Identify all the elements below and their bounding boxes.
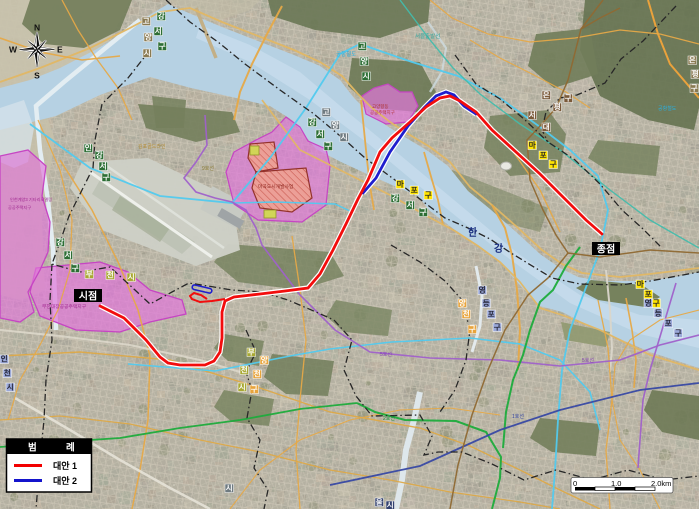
svg-text:포: 포 [645,290,652,299]
svg-text:고: 고 [359,42,366,51]
svg-text:구: 구 [72,264,79,273]
svg-text:시: 시 [7,383,14,392]
svg-text:마: 마 [529,140,536,150]
svg-text:김포골드라인: 김포골드라인 [138,143,166,150]
svg-text:강: 강 [57,237,64,247]
svg-text:구: 구 [675,329,682,338]
svg-text:천: 천 [107,270,114,280]
svg-text:5호선: 5호선 [582,357,594,364]
svg-text:강: 강 [309,117,316,127]
svg-text:9호선: 9호선 [202,165,214,172]
svg-text:서: 서 [407,200,414,210]
svg-text:S: S [34,71,40,81]
svg-text:천: 천 [254,369,261,379]
svg-text:고양향동: 고양향동 [372,103,389,109]
svg-text:강: 강 [96,150,103,160]
svg-text:서: 서 [100,161,107,171]
svg-text:구: 구 [425,191,432,200]
svg-text:공공주택지구: 공공주택지구 [8,204,31,211]
svg-text:2호선: 2호선 [383,415,395,422]
svg-text:례: 례 [66,442,75,454]
svg-text:N: N [34,23,40,33]
svg-text:1.0: 1.0 [611,479,621,488]
svg-text:구: 구 [159,42,166,51]
svg-text:인: 인 [1,354,8,364]
svg-text:강: 강 [392,193,399,203]
svg-text:양: 양 [459,298,466,308]
svg-text:구: 구 [251,385,258,394]
svg-text:양: 양 [332,120,339,130]
svg-text:마: 마 [397,179,404,189]
svg-text:인천계양3 기타리모델링: 인천계양3 기타리모델링 [10,196,52,203]
svg-text:공항철도: 공항철도 [336,50,356,58]
svg-text:마곡도시개발사업: 마곡도시개발사업 [258,183,293,190]
svg-text:천: 천 [241,365,248,375]
svg-text:구: 구 [550,160,557,169]
svg-text:천: 천 [4,368,11,378]
svg-text:구: 구 [653,299,660,308]
svg-text:포: 포 [411,186,418,195]
svg-text:인: 인 [85,143,92,153]
svg-text:서: 서 [529,110,536,120]
svg-text:등: 등 [655,309,662,318]
svg-text:시: 시 [387,501,394,509]
svg-text:고: 고 [143,17,150,26]
svg-text:구: 구 [325,142,332,151]
svg-text:평: 평 [554,102,561,112]
svg-text:공항철도: 공항철도 [658,105,677,112]
svg-text:부: 부 [248,348,255,357]
svg-text:시: 시 [363,72,370,81]
svg-text:울: 울 [376,497,383,507]
svg-text:구: 구 [420,208,427,217]
svg-text:구: 구 [469,325,476,334]
svg-text:부: 부 [86,270,93,279]
svg-text:평: 평 [692,69,699,79]
svg-text:서: 서 [155,26,162,36]
svg-text:은: 은 [543,91,550,100]
svg-text:강: 강 [494,242,504,255]
svg-text:서울출발선: 서울출발선 [415,32,440,40]
svg-text:부천대장공공주택지구: 부천대장공공주택지구 [42,303,87,310]
svg-text:포: 포 [665,319,672,328]
svg-text:1호선: 1호선 [512,413,524,420]
svg-text:서: 서 [65,250,72,260]
svg-text:양: 양 [361,56,368,66]
svg-text:등: 등 [483,299,490,308]
svg-text:영: 영 [645,298,652,308]
svg-text:시: 시 [144,49,151,58]
svg-text:구: 구 [691,84,698,93]
svg-text:W: W [9,45,18,55]
svg-text:범: 범 [28,442,37,454]
svg-text:시: 시 [226,484,233,493]
svg-text:시: 시 [341,133,348,142]
svg-text:서: 서 [317,129,324,139]
svg-text:대: 대 [543,122,550,132]
svg-text:구: 구 [494,323,501,332]
svg-text:대안 1: 대안 1 [53,460,77,471]
svg-text:포: 포 [488,310,495,319]
svg-text:0: 0 [573,479,577,488]
svg-text:은: 은 [689,56,696,65]
svg-text:마: 마 [637,279,644,289]
svg-text:E: E [57,45,63,55]
svg-text:시점: 시점 [79,291,97,303]
svg-text:한: 한 [468,227,478,239]
svg-text:천: 천 [463,309,470,319]
svg-text:영: 영 [479,285,486,295]
svg-text:구: 구 [565,94,572,103]
svg-text:시: 시 [128,273,135,282]
svg-text:양: 양 [261,355,268,365]
svg-text:대안 2: 대안 2 [53,475,77,486]
svg-text:공공주택지구: 공공주택지구 [370,109,395,116]
svg-text:포: 포 [540,151,547,160]
svg-text:강: 강 [158,11,165,21]
svg-text:시: 시 [239,383,246,392]
svg-text:양: 양 [145,32,152,42]
svg-text:고: 고 [323,108,330,117]
svg-text:2.0km: 2.0km [651,479,671,488]
svg-text:종점: 종점 [597,244,615,256]
svg-text:5호선: 5호선 [380,351,392,358]
svg-text:구: 구 [103,173,110,182]
